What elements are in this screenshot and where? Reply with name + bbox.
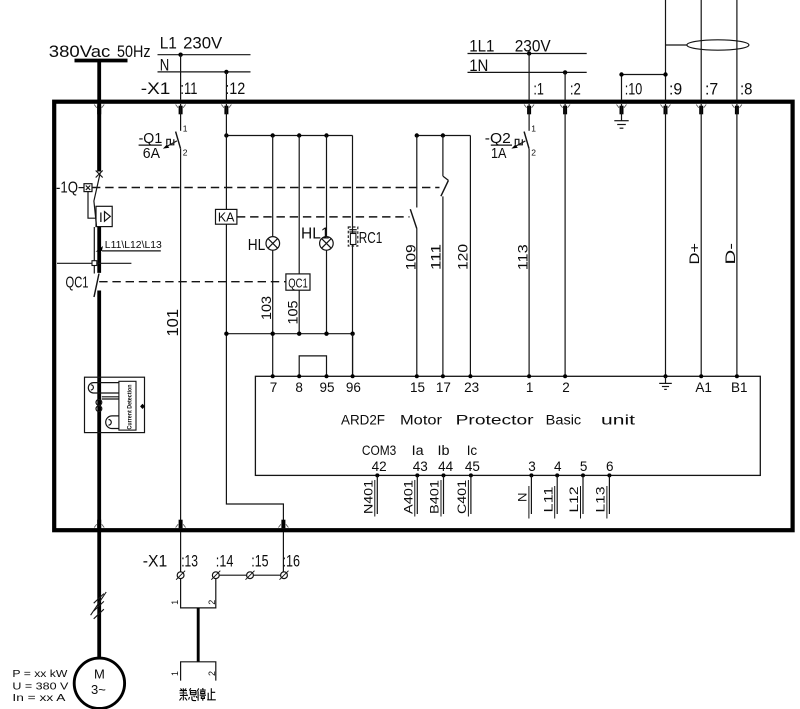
svg-text:B1: B1 bbox=[731, 380, 748, 395]
svg-text:6A: 6A bbox=[143, 146, 161, 162]
svg-text:2: 2 bbox=[183, 147, 188, 157]
svg-text::9: :9 bbox=[669, 80, 682, 98]
svg-text:1A: 1A bbox=[491, 146, 507, 162]
svg-text:113: 113 bbox=[514, 244, 530, 270]
svg-text:101: 101 bbox=[165, 309, 182, 337]
svg-text:380Vac: 380Vac bbox=[49, 42, 111, 61]
svg-text:2: 2 bbox=[207, 671, 217, 676]
svg-text:111: 111 bbox=[427, 244, 443, 270]
svg-text::14: :14 bbox=[216, 552, 234, 570]
svg-text:L1: L1 bbox=[160, 34, 177, 53]
svg-text:Basic: Basic bbox=[546, 412, 582, 427]
svg-text:95: 95 bbox=[319, 380, 334, 395]
svg-text:15: 15 bbox=[410, 380, 425, 395]
svg-text::1: :1 bbox=[533, 80, 544, 98]
svg-text:Ib: Ib bbox=[438, 443, 450, 458]
svg-text:Ia: Ia bbox=[412, 443, 425, 458]
svg-text:-X1: -X1 bbox=[141, 80, 171, 98]
svg-text:Protector: Protector bbox=[456, 412, 535, 427]
svg-text:-1Q: -1Q bbox=[56, 180, 78, 197]
svg-text:1N: 1N bbox=[469, 56, 488, 75]
svg-text:50Hz: 50Hz bbox=[117, 42, 151, 61]
svg-text:KA: KA bbox=[218, 211, 235, 225]
svg-text:1L1: 1L1 bbox=[469, 37, 494, 56]
svg-text::15: :15 bbox=[251, 552, 268, 570]
svg-text:U = 380 V: U = 380 V bbox=[12, 682, 68, 693]
svg-text:1: 1 bbox=[170, 671, 180, 676]
svg-text:Motor: Motor bbox=[400, 412, 443, 427]
svg-text:N: N bbox=[518, 493, 530, 503]
svg-text:I: I bbox=[99, 210, 103, 225]
svg-text:HL1: HL1 bbox=[301, 225, 330, 242]
svg-text:Current Detection: Current Detection bbox=[127, 384, 134, 429]
svg-text:1: 1 bbox=[183, 124, 188, 134]
svg-text::2: :2 bbox=[570, 80, 581, 98]
svg-text::10: :10 bbox=[625, 80, 643, 98]
svg-text:QC1: QC1 bbox=[288, 276, 308, 290]
svg-text:COM3: COM3 bbox=[362, 443, 396, 458]
svg-text:Ic: Ic bbox=[467, 443, 478, 458]
svg-text:120: 120 bbox=[454, 244, 470, 270]
svg-text:1: 1 bbox=[526, 380, 534, 395]
svg-text:In = xx A: In = xx A bbox=[12, 693, 65, 704]
svg-text:B401: B401 bbox=[430, 480, 442, 514]
svg-text:23: 23 bbox=[464, 380, 479, 395]
svg-text:45: 45 bbox=[465, 459, 480, 474]
svg-text:230V: 230V bbox=[183, 34, 223, 53]
svg-text:8: 8 bbox=[295, 380, 303, 395]
svg-text::16: :16 bbox=[283, 552, 301, 570]
svg-text:96: 96 bbox=[346, 380, 361, 395]
svg-text:HL: HL bbox=[248, 237, 266, 254]
svg-text:P = xx kW: P = xx kW bbox=[12, 669, 68, 680]
svg-text:N: N bbox=[160, 56, 170, 75]
svg-text:7: 7 bbox=[270, 380, 278, 395]
svg-text:-X1: -X1 bbox=[143, 552, 168, 570]
svg-text:L11: L11 bbox=[543, 487, 555, 513]
svg-text:D-: D- bbox=[722, 243, 738, 265]
svg-text:103: 103 bbox=[258, 296, 274, 320]
svg-text:1: 1 bbox=[531, 124, 536, 134]
svg-text:3: 3 bbox=[528, 459, 536, 474]
svg-text:L11\L12\L13: L11\L12\L13 bbox=[105, 239, 162, 251]
svg-text:42: 42 bbox=[372, 459, 387, 474]
svg-text:M: M bbox=[94, 667, 105, 682]
svg-text:4: 4 bbox=[554, 459, 562, 474]
svg-text:2: 2 bbox=[562, 380, 570, 395]
svg-text::13: :13 bbox=[181, 552, 198, 570]
svg-text:5: 5 bbox=[580, 459, 588, 474]
svg-text:105: 105 bbox=[284, 300, 300, 324]
svg-text:L12: L12 bbox=[569, 487, 581, 513]
svg-text:1: 1 bbox=[170, 600, 180, 605]
svg-text:C401: C401 bbox=[457, 480, 469, 514]
svg-text:44: 44 bbox=[438, 459, 454, 474]
svg-text:17: 17 bbox=[436, 380, 451, 395]
svg-text::8: :8 bbox=[740, 80, 753, 98]
svg-text:unit: unit bbox=[601, 412, 635, 427]
svg-text:109: 109 bbox=[403, 244, 419, 270]
svg-text:A401: A401 bbox=[404, 480, 416, 514]
svg-text:D+: D+ bbox=[686, 243, 702, 265]
svg-text:230V: 230V bbox=[515, 37, 552, 56]
svg-text:L13: L13 bbox=[596, 487, 608, 513]
svg-text::12: :12 bbox=[225, 80, 245, 98]
svg-text:ARD2F: ARD2F bbox=[341, 412, 385, 427]
svg-text:43: 43 bbox=[413, 459, 428, 474]
svg-text::7: :7 bbox=[705, 80, 718, 98]
svg-text:2: 2 bbox=[531, 147, 536, 157]
svg-text:2: 2 bbox=[207, 600, 217, 605]
svg-text:A1: A1 bbox=[695, 380, 712, 395]
svg-text:RC1: RC1 bbox=[359, 230, 383, 247]
svg-text:N401: N401 bbox=[364, 480, 376, 514]
svg-text:QC1: QC1 bbox=[66, 275, 89, 292]
svg-text:6: 6 bbox=[606, 459, 614, 474]
svg-text:3~: 3~ bbox=[91, 682, 106, 697]
svg-text::11: :11 bbox=[180, 80, 197, 98]
